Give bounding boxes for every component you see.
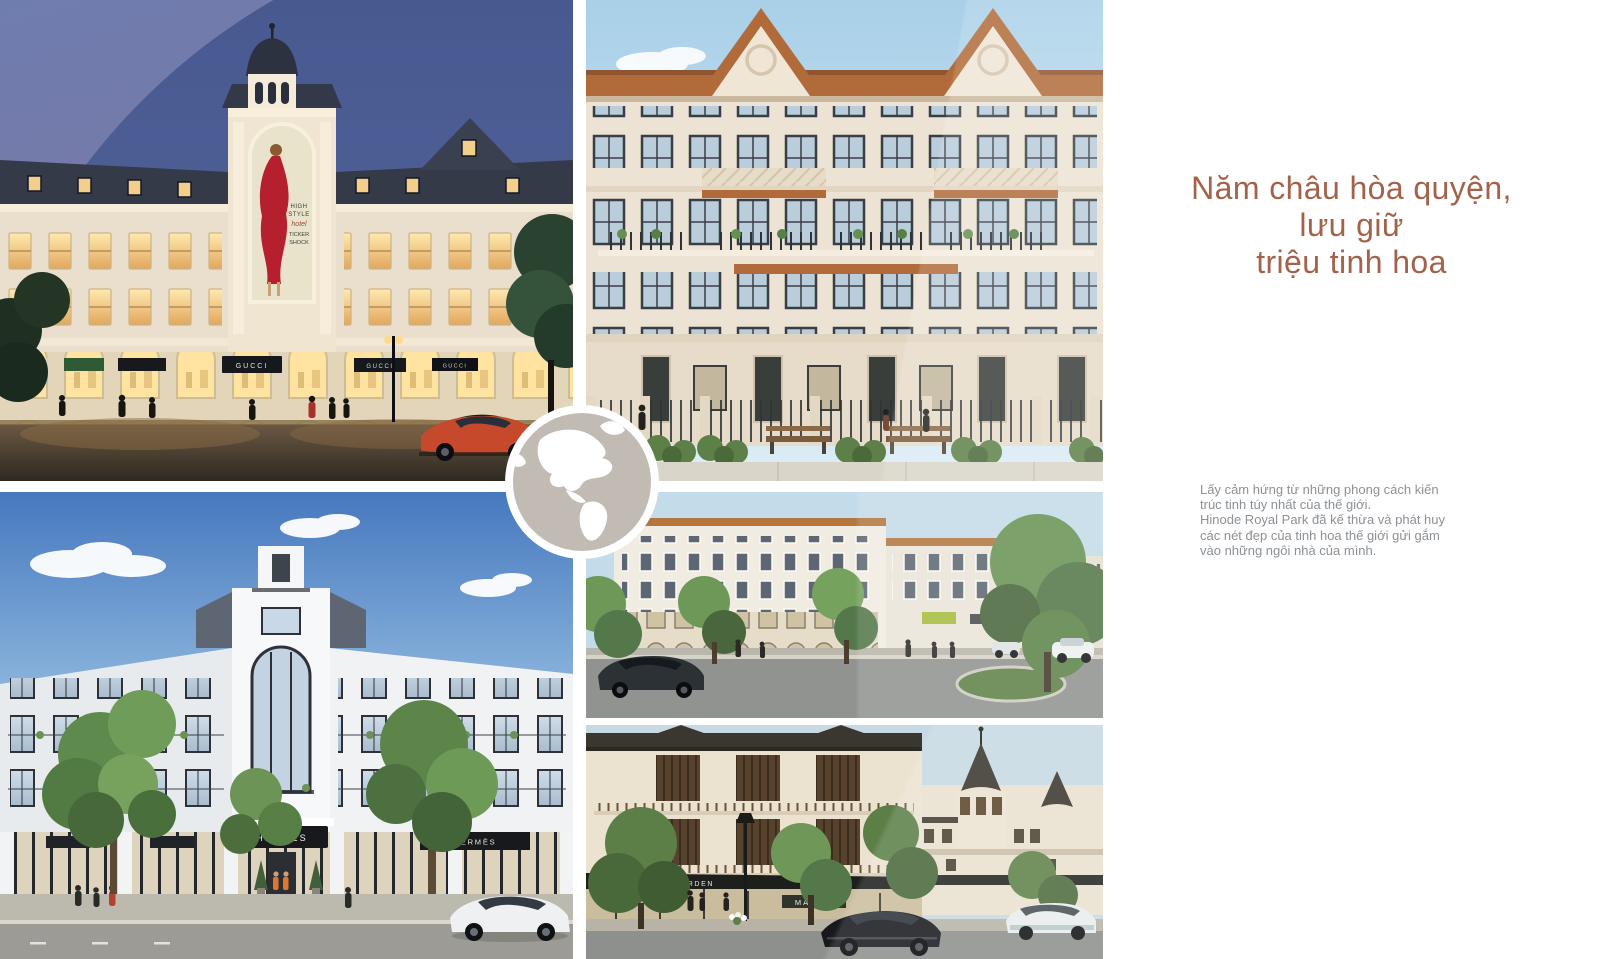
windows-floor2: [592, 272, 1097, 334]
body-line-1: Lấy cảm hứng từ những phong cách kiến: [1200, 482, 1460, 497]
night-street-illustration: HIGH STYLE hotel TICKER SHOCK GUCCI GUCC…: [0, 0, 573, 481]
billboard-text: STYLE: [288, 212, 310, 218]
iron-fence: [586, 400, 1103, 442]
hermes-building-illustration: HERMÈS HERMÈS: [0, 492, 573, 959]
shop-sign-green: [64, 358, 104, 371]
shopper-orange: [283, 877, 289, 890]
shopper-orange: [273, 877, 279, 890]
body-line-4: các nét đẹp của tinh hoa thế giới gửi gắ…: [1200, 528, 1460, 543]
gucci-sign-text: GUCCI: [443, 364, 468, 370]
model-hair: [270, 144, 282, 156]
title-line-1: Năm châu hòa quyện,: [1103, 170, 1600, 207]
pedestrian-red-dress: [309, 402, 316, 418]
brochure-page: HIGH STYLE hotel TICKER SHOCK GUCCI GUCC…: [0, 0, 1600, 959]
fashion-billboard: HIGH STYLE hotel TICKER SHOCK: [250, 124, 314, 302]
windows-floor4: [592, 106, 1097, 168]
terrace-canopy: [734, 264, 958, 274]
balcony-canopy: [934, 190, 1058, 198]
body-line-5: vào những ngôi nhà của mình.: [1200, 543, 1460, 558]
globe-americas-icon: [504, 404, 660, 560]
balcony-railings: [598, 229, 1094, 256]
balcony-canopy: [702, 190, 826, 198]
billboard-text: hotel: [291, 221, 307, 228]
billboard-text: TICKER: [289, 232, 309, 238]
body-line-3: Hinode Royal Park đã kế thừa và phát huy: [1200, 512, 1460, 527]
shop-sign: [150, 836, 194, 848]
panel-hermes-boutique: HERMÈS HERMÈS: [0, 492, 573, 959]
title-line-3: triệu tinh hoa: [1103, 244, 1600, 281]
boutique-entrance: [268, 852, 296, 894]
billboard-text: HIGH: [291, 204, 308, 210]
townhouse-illustration: [586, 0, 1103, 481]
gucci-sign-text: GUCCI: [366, 364, 393, 370]
shop-sign: [118, 358, 166, 371]
ground-floor: [586, 342, 1103, 446]
page-title: Năm châu hòa quyện, lưu giữ triệu tinh h…: [1103, 170, 1600, 281]
gucci-sign-text: GUCCI: [236, 363, 269, 370]
panel-townhouse-row: [586, 0, 1103, 481]
billboard-text: SHOCK: [289, 240, 309, 246]
body-line-2: trúc tinh túy nhất của thế giới.: [1200, 497, 1460, 512]
indochine-street-illustration: SH GARDEN MANGO MANGO: [586, 725, 1103, 959]
street-scene-illustration: [586, 492, 1103, 718]
green-shop-sign: [922, 612, 956, 624]
text-panel: Năm châu hòa quyện, lưu giữ triệu tinh h…: [1103, 0, 1600, 959]
panel-night-shopping-street: HIGH STYLE hotel TICKER SHOCK GUCCI GUCC…: [0, 0, 573, 481]
panel-indochine-street: SH GARDEN MANGO MANGO: [586, 725, 1103, 959]
panel-shophouse-street: [586, 492, 1103, 718]
lattice-band: [934, 168, 1058, 188]
lattice-band: [702, 168, 826, 188]
title-line-2: lưu giữ: [1103, 207, 1600, 244]
description-paragraph: Lấy cảm hứng từ những phong cách kiến tr…: [1200, 482, 1460, 558]
